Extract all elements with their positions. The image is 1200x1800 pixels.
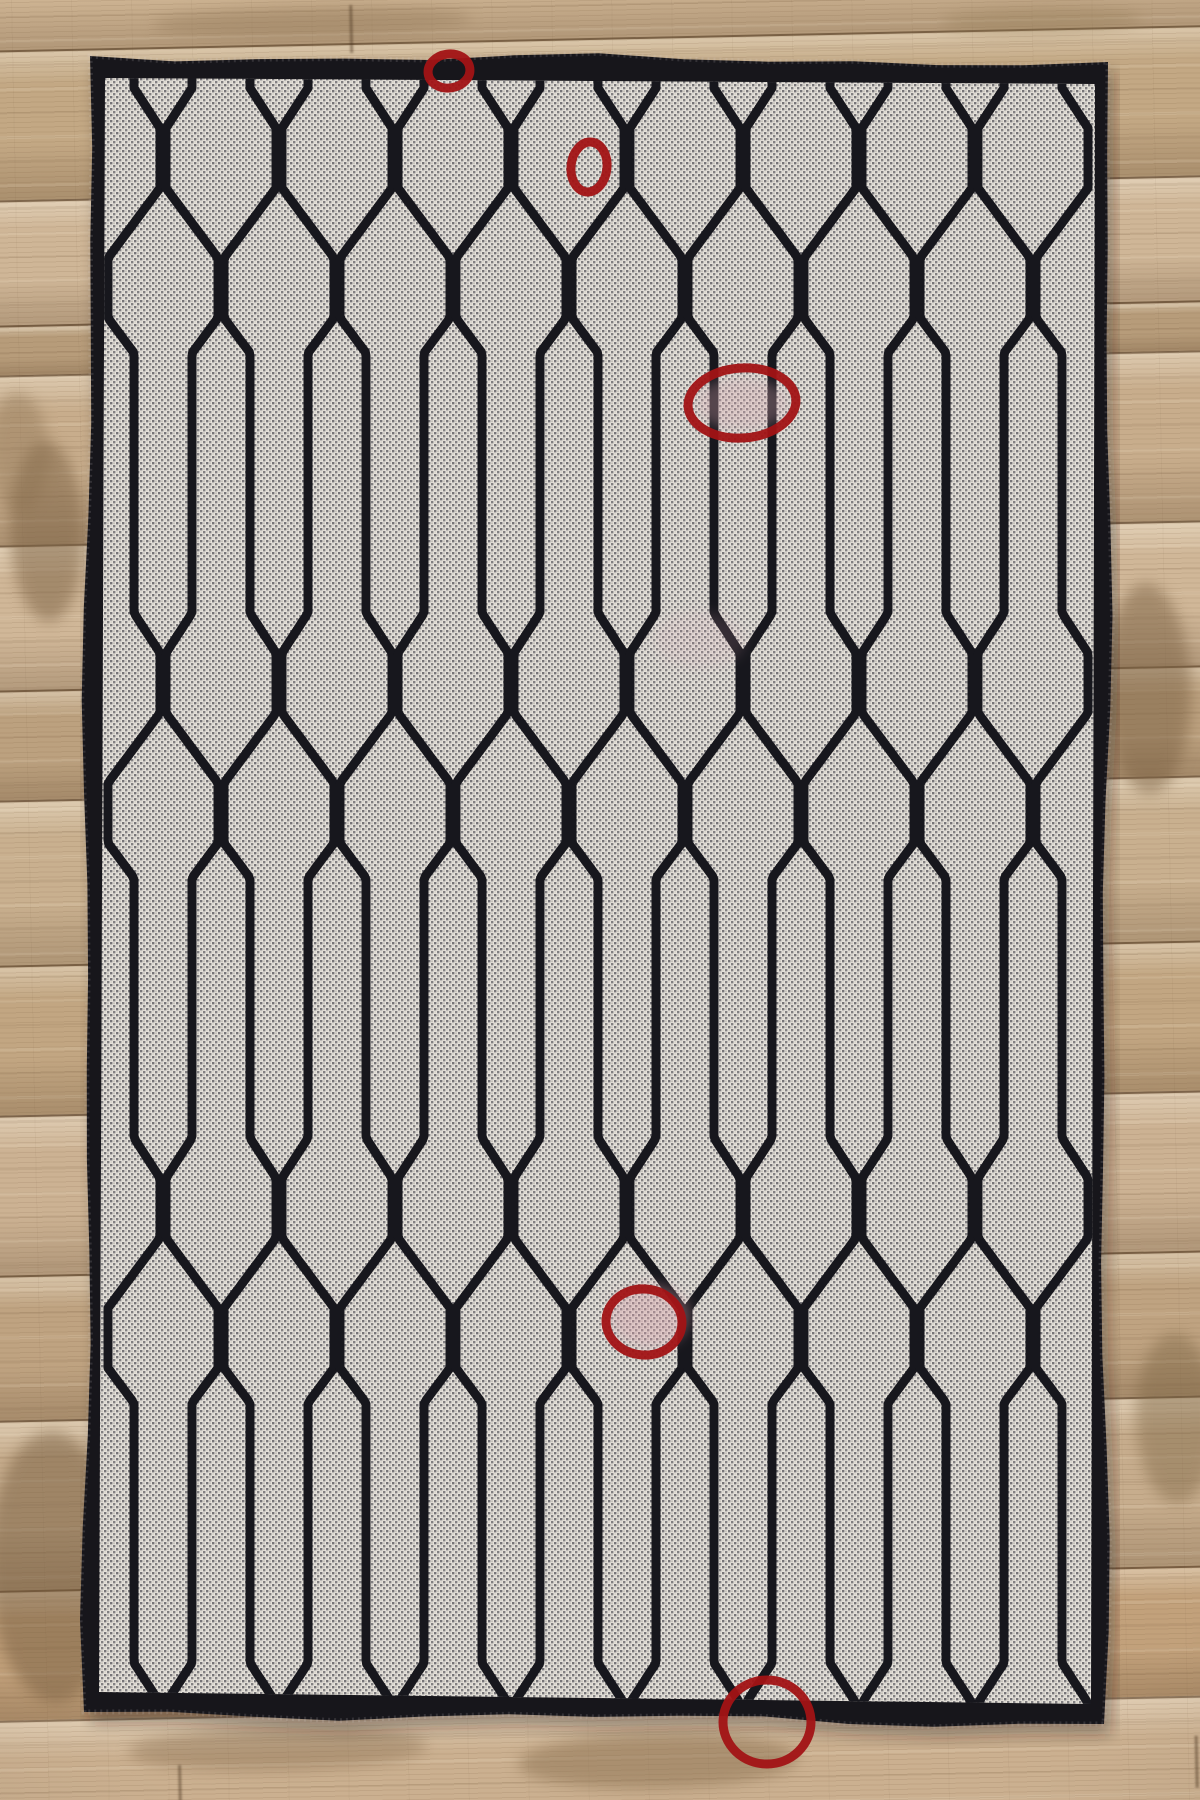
annotation-circle [426,51,472,91]
annotation-circle [603,1286,684,1358]
annotation-circle [568,140,609,193]
scene [0,0,1200,1800]
annotation-circle [686,364,799,441]
annotation-circle [723,1680,811,1764]
annotation-layer [0,0,1200,1800]
